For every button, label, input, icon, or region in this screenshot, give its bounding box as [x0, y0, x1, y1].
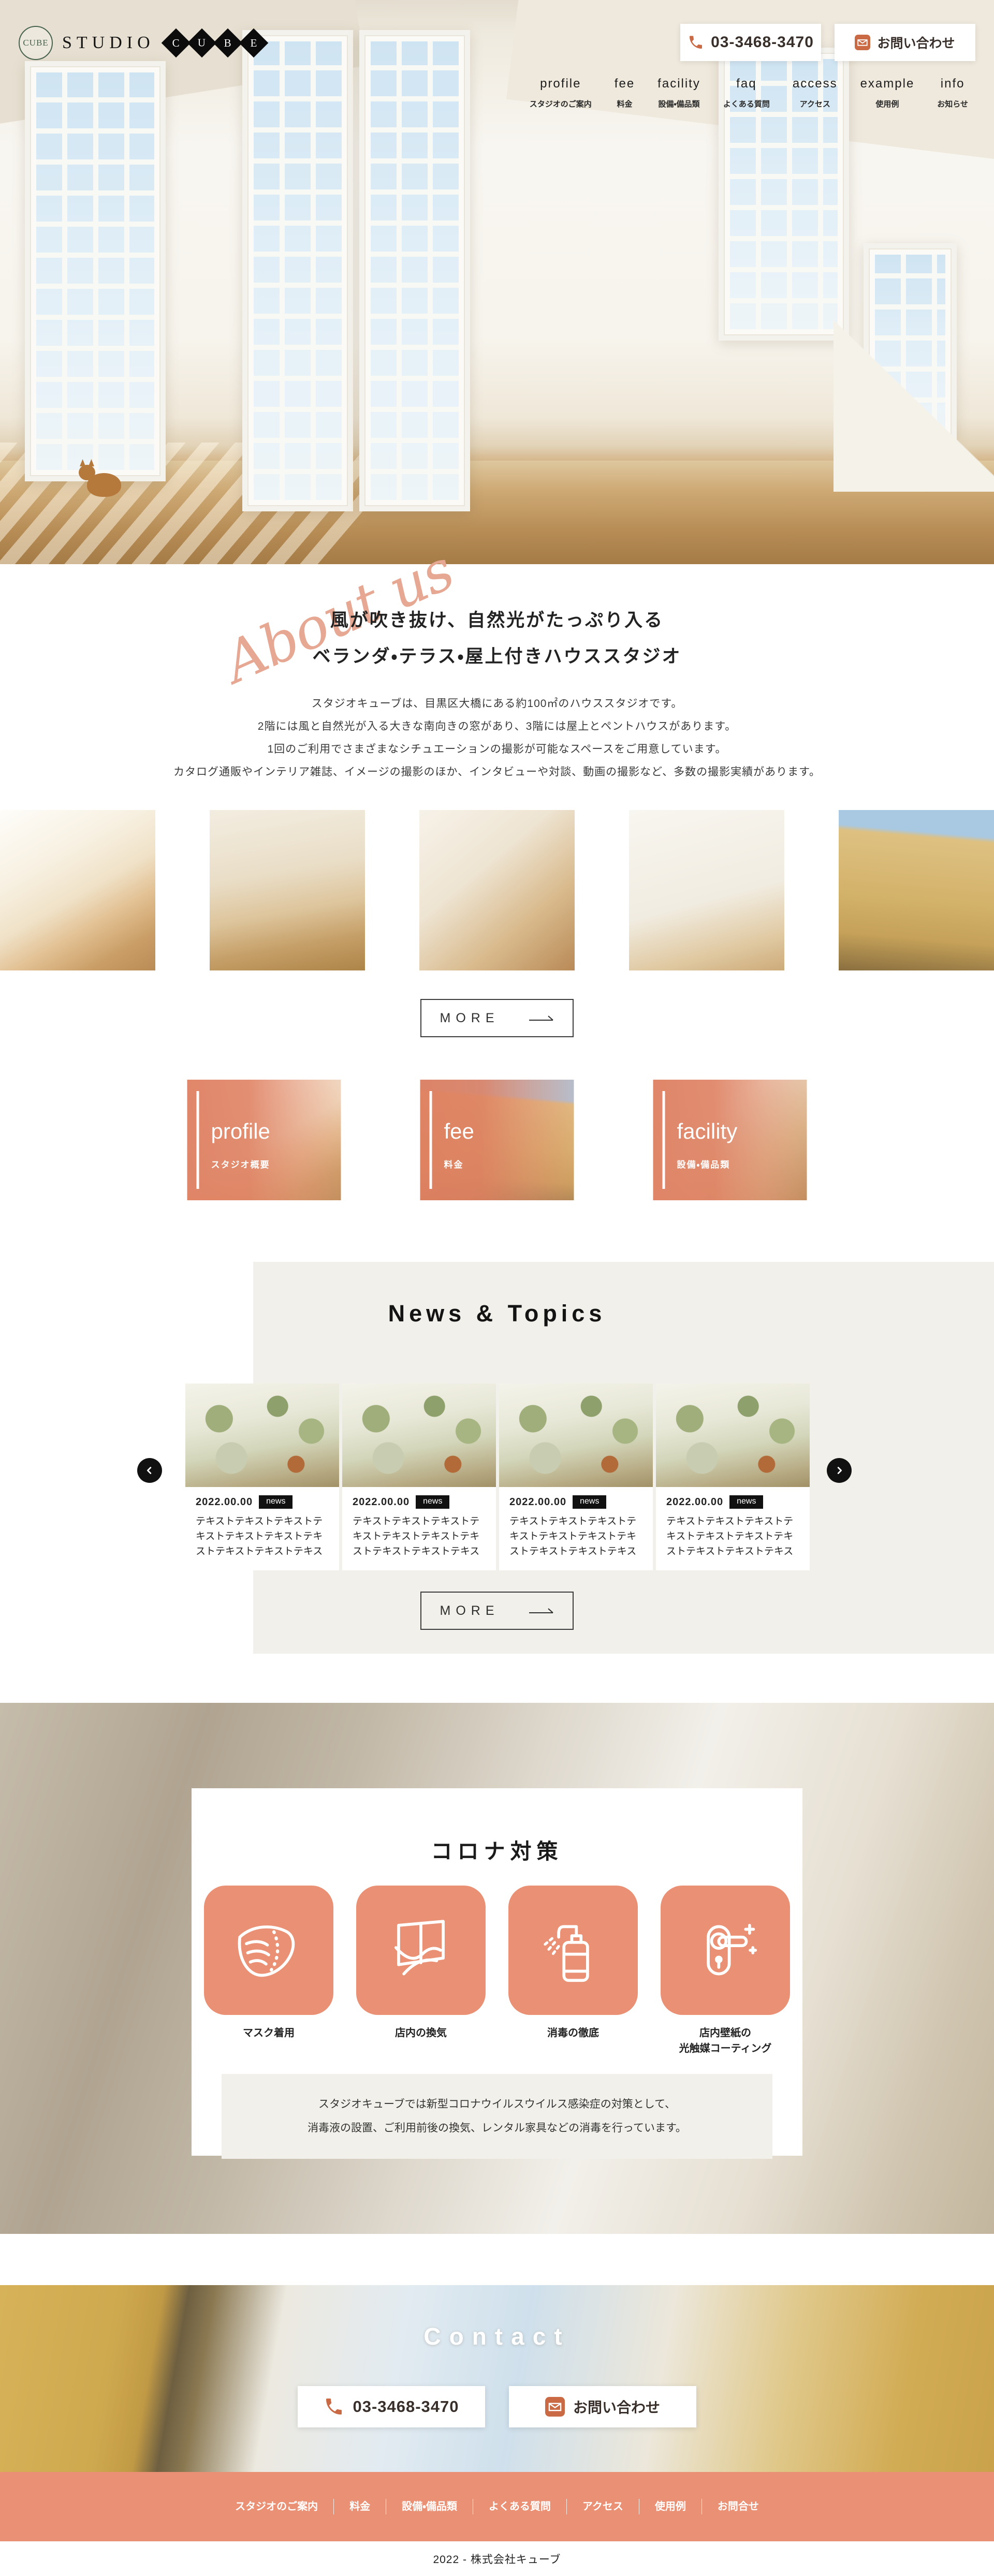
menu-card-title-jp: 料金	[444, 1157, 464, 1170]
header-contact-button[interactable]: お問い合わせ	[835, 24, 975, 61]
footer-links: スタジオのご案内 料金 設備・備品類 よくある質問 アクセス 使用例 お問合せ	[220, 2499, 774, 2514]
hero-door-panes	[36, 72, 154, 470]
menu-card-title-en: profile	[211, 1119, 270, 1144]
footer: スタジオのご案内 料金 設備・備品類 よくある質問 アクセス 使用例 お問合せ	[0, 2472, 994, 2541]
copyright-text: 2022 - 株式会社キューブ	[433, 2551, 561, 2567]
nav-item-en: access	[793, 77, 838, 91]
news-excerpt: テキストテキストテキストテキストテキストテキストテキストテキストテキストテキスト…	[666, 1514, 799, 1559]
sanitizer-pump-icon	[508, 1886, 638, 2015]
nav-item-en: example	[860, 77, 915, 91]
corona-measure-label: 店内壁紙の 光触媒コーティング	[679, 2025, 772, 2056]
news-date: 2022.00.00	[666, 1496, 723, 1508]
footer-link-example[interactable]: 使用例	[639, 2499, 702, 2514]
about-heading-line2: ベランダ・テラス・屋上付きハウススタジオ	[0, 639, 994, 675]
corona-note-line2: 消毒液の設置、ご利用前後の換気、レンタル家具などの消毒を行っています。	[222, 2116, 772, 2140]
section-spacer	[0, 1654, 994, 1703]
hero-section: CUBE STUDIO C U B E 03-3468-3470 お問い合わせ …	[0, 0, 994, 564]
logo-studio-text: STUDIO	[62, 33, 155, 53]
corona-title: コロナ対策	[192, 1834, 802, 1865]
gallery-photo	[839, 810, 994, 970]
menu-card-title-jp: スタジオ概要	[211, 1157, 270, 1170]
news-card-meta: 2022.00.00 news	[509, 1495, 642, 1509]
about-heading-line1: 風が吹き抜け、自然光がたっぷり入る	[0, 602, 994, 639]
news-card-body: 2022.00.00 news テキストテキストテキストテキストテキストテキスト…	[656, 1487, 810, 1570]
open-window-wind-icon	[356, 1886, 486, 2015]
contact-background-photo	[0, 2285, 994, 2472]
news-more-button[interactable]: MORE	[420, 1592, 574, 1630]
header-cta-group: 03-3468-3470 お問い合わせ	[680, 24, 975, 61]
corona-note-line1: スタジオキューブでは新型コロナウイルスウイルス感染症の対策として、	[222, 2093, 772, 2116]
nav-item-faq[interactable]: faq よくある質問	[712, 77, 781, 109]
footer-link-facility[interactable]: 設備・備品類	[386, 2499, 473, 2514]
hero-french-door-center-1	[242, 30, 353, 511]
corona-measure-label-line: 消毒の徹底	[547, 2025, 599, 2041]
logo[interactable]: CUBE STUDIO C U B E	[19, 26, 267, 60]
corona-card: コロナ対策 マスク着用	[192, 1788, 802, 2156]
corona-measure-label: 消毒の徹底	[547, 2025, 599, 2041]
nav-item-en: fee	[615, 77, 635, 91]
menu-card-title-jp: 設備・備品類	[677, 1157, 730, 1170]
about-paragraph-line: 2階には風と自然光が入る大きな南向きの窓があり、3階には屋上とペントハウスがあり…	[0, 715, 994, 738]
menu-card-accent-bar	[197, 1091, 199, 1189]
gallery-photo	[419, 810, 575, 970]
right-arrow-icon	[529, 1014, 554, 1022]
corona-measure-label-line: 店内の換気	[395, 2025, 447, 2041]
nav-item-info[interactable]: info お知らせ	[926, 77, 980, 109]
corona-section: コロナ対策 マスク着用	[0, 1703, 994, 2234]
hero-door-panes	[254, 41, 342, 500]
news-excerpt: テキストテキストテキストテキストテキストテキストテキストテキストテキストテキスト…	[509, 1514, 642, 1559]
nav-item-jp: アクセス	[800, 98, 830, 109]
contact-phone-number: 03-3468-3470	[353, 2397, 459, 2416]
logo-diamond-letter: B	[224, 36, 231, 49]
nav-item-profile[interactable]: profile スタジオのご案内	[518, 77, 603, 109]
news-card-meta: 2022.00.00 news	[353, 1495, 486, 1509]
corona-measure-label-line: 店内壁紙の	[679, 2025, 772, 2041]
hero-french-door-left	[25, 61, 166, 481]
hero-cat	[87, 473, 121, 497]
about-more-button[interactable]: MORE	[420, 999, 574, 1037]
logo-diamond-letter: E	[250, 36, 257, 49]
nav-item-fee[interactable]: fee 料金	[603, 77, 646, 109]
hero-staircase	[834, 321, 994, 492]
news-category-badge: news	[259, 1495, 293, 1509]
nav-item-jp: 設備・備品類	[658, 98, 699, 109]
door-handle-sparkle-icon	[661, 1886, 790, 2015]
contact-mail-label: お問い合わせ	[573, 2396, 660, 2417]
header-phone-button[interactable]: 03-3468-3470	[680, 24, 821, 61]
news-excerpt: テキストテキストテキストテキストテキストテキストテキストテキストテキストテキスト…	[353, 1514, 486, 1559]
nav-item-en: profile	[540, 77, 581, 91]
nav-item-jp: 料金	[617, 98, 632, 109]
news-card-body: 2022.00.00 news テキストテキストテキストテキストテキストテキスト…	[185, 1487, 339, 1570]
logo-emblem-icon: CUBE	[19, 26, 53, 60]
footer-link-faq[interactable]: よくある質問	[473, 2499, 567, 2514]
nav-item-jp: お知らせ	[937, 98, 968, 109]
nav-item-jp: スタジオのご案内	[530, 98, 592, 109]
footer-link-fee[interactable]: 料金	[334, 2499, 386, 2514]
about-paragraph-line: 1回のご利用でさまざまなシチュエーションの撮影が可能なスペースをご用意しています…	[0, 738, 994, 761]
news-title: News & Topics	[0, 1300, 994, 1327]
menu-card-title-en: facility	[677, 1119, 738, 1144]
gallery-photo	[629, 810, 784, 970]
news-card-body: 2022.00.00 news テキストテキストテキストテキストテキストテキスト…	[342, 1487, 496, 1570]
phone-icon	[324, 2396, 344, 2417]
news-date: 2022.00.00	[353, 1496, 410, 1508]
news-card[interactable]: 2022.00.00 news テキストテキストテキストテキストテキストテキスト…	[499, 1383, 653, 1570]
chevron-left-icon	[144, 1465, 155, 1476]
more-label: MORE	[440, 1603, 500, 1618]
menu-card-facility[interactable]: facility 設備・備品類	[653, 1080, 807, 1200]
news-card[interactable]: 2022.00.00 news テキストテキストテキストテキストテキストテキスト…	[656, 1383, 810, 1570]
menu-card-title-en: fee	[444, 1119, 474, 1144]
news-category-badge: news	[416, 1495, 449, 1509]
contact-button-row: 03-3468-3470 お問い合わせ	[298, 2386, 696, 2427]
logo-diamond-letter: C	[172, 36, 180, 49]
contact-title: Contact	[0, 2322, 994, 2350]
logo-diamond: E	[239, 28, 268, 58]
contact-section: Contact 03-3468-3470 お問い合わせ	[0, 2285, 994, 2472]
news-card-meta: 2022.00.00 news	[196, 1495, 329, 1509]
corona-measure-coating: 店内壁紙の 光触媒コーティング	[661, 1886, 790, 2056]
section-spacer	[0, 2234, 994, 2285]
main-nav: profile スタジオのご案内 fee 料金 facility 設備・備品類 …	[518, 77, 980, 109]
more-label: MORE	[440, 1011, 500, 1026]
menu-card-profile[interactable]: profile スタジオ概要	[187, 1080, 341, 1200]
phone-icon	[688, 34, 704, 51]
logo-diamond: C	[161, 28, 191, 58]
about-paragraph-line: カタログ通販やインテリア雑誌、イメージの撮影のほか、インタビューや対談、動画の撮…	[0, 761, 994, 784]
logo-diamond-letter: U	[198, 36, 206, 49]
news-card-photo	[185, 1383, 339, 1487]
contact-phone-button[interactable]: 03-3468-3470	[298, 2386, 485, 2427]
chevron-right-icon	[834, 1465, 845, 1476]
menu-card-overlay	[420, 1080, 574, 1200]
hero-french-door-center-2	[359, 30, 470, 511]
news-card-photo	[499, 1383, 653, 1487]
nav-item-en: faq	[736, 77, 756, 91]
hero-door-panes	[371, 41, 459, 500]
logo-emblem-text: CUBE	[23, 38, 48, 48]
news-date: 2022.00.00	[509, 1496, 566, 1508]
menu-card-row: profile スタジオ概要 fee 料金 facility 設備・備品類	[187, 1080, 807, 1200]
nav-item-facility[interactable]: facility 設備・備品類	[646, 77, 712, 109]
right-arrow-icon	[529, 1607, 554, 1614]
logo-diamond: U	[187, 28, 216, 58]
news-card-row: 2022.00.00 news テキストテキストテキストテキストテキストテキスト…	[185, 1383, 810, 1570]
corona-measure-label-line: 光触媒コーティング	[679, 2041, 772, 2056]
news-excerpt: テキストテキストテキストテキストテキストテキストテキストテキストテキストテキスト…	[196, 1514, 329, 1559]
news-next-button[interactable]	[827, 1458, 852, 1483]
news-prev-button[interactable]	[137, 1458, 162, 1483]
news-card[interactable]: 2022.00.00 news テキストテキストテキストテキストテキストテキスト…	[185, 1383, 339, 1570]
header-phone-number: 03-3468-3470	[711, 34, 814, 51]
menu-card-fee[interactable]: fee 料金	[420, 1080, 574, 1200]
gallery-photo	[0, 810, 155, 970]
news-category-badge: news	[573, 1495, 606, 1509]
menu-card-accent-bar	[663, 1091, 665, 1189]
footer-link-profile[interactable]: スタジオのご案内	[220, 2499, 334, 2514]
corona-measure-disinfection: 消毒の徹底	[508, 1886, 638, 2056]
about-paragraph: スタジオキューブは、目黒区大橋にある約100㎡のハウススタジオです。 2階には風…	[0, 693, 994, 784]
corona-measures-row: マスク着用 店内の換気	[192, 1886, 802, 2056]
nav-item-en: info	[941, 77, 965, 91]
about-heading: 風が吹き抜け、自然光がたっぷり入る ベランダ・テラス・屋上付きハウススタジオ	[0, 602, 994, 675]
footer-link-contact[interactable]: お問合せ	[702, 2499, 774, 2514]
nav-item-example[interactable]: example 使用例	[849, 77, 926, 109]
nav-item-en: facility	[657, 77, 700, 91]
news-card[interactable]: 2022.00.00 news テキストテキストテキストテキストテキストテキスト…	[342, 1383, 496, 1570]
nav-item-access[interactable]: access アクセス	[781, 77, 849, 109]
corona-measure-ventilation: 店内の換気	[356, 1886, 486, 2056]
header-contact-label: お問い合わせ	[877, 33, 955, 52]
news-card-photo	[656, 1383, 810, 1487]
news-section: News & Topics 2022.00.00 news テキストテキストテキ…	[0, 1262, 994, 1654]
page: CUBE STUDIO C U B E 03-3468-3470 お問い合わせ …	[0, 0, 994, 2576]
nav-item-jp: よくある質問	[723, 98, 770, 109]
gallery-photo	[210, 810, 365, 970]
about-section: About us 風が吹き抜け、自然光がたっぷり入る ベランダ・テラス・屋上付き…	[0, 564, 994, 1262]
corona-measure-label: マスク着用	[243, 2025, 295, 2041]
about-paragraph-line: スタジオキューブは、目黒区大橋にある約100㎡のハウススタジオです。	[0, 693, 994, 715]
mail-icon	[855, 35, 870, 50]
logo-diamond: B	[213, 28, 242, 58]
news-card-photo	[342, 1383, 496, 1487]
corona-note: スタジオキューブでは新型コロナウイルスウイルス感染症の対策として、 消毒液の設置…	[222, 2074, 772, 2159]
logo-cube-diamonds-icon: C U B E	[163, 33, 267, 53]
contact-mail-button[interactable]: お問い合わせ	[509, 2386, 696, 2427]
mail-icon	[545, 2397, 565, 2417]
photo-gallery	[0, 810, 994, 970]
menu-card-accent-bar	[430, 1091, 432, 1189]
face-mask-icon	[204, 1886, 333, 2015]
corona-measure-label-line: マスク着用	[243, 2025, 295, 2041]
news-date: 2022.00.00	[196, 1496, 253, 1508]
news-card-body: 2022.00.00 news テキストテキストテキストテキストテキストテキスト…	[499, 1487, 653, 1570]
footer-link-access[interactable]: アクセス	[567, 2499, 639, 2514]
corona-measure-label: 店内の換気	[395, 2025, 447, 2041]
nav-item-jp: 使用例	[875, 98, 899, 109]
news-card-meta: 2022.00.00 news	[666, 1495, 799, 1509]
copyright-bar: 2022 - 株式会社キューブ	[0, 2541, 994, 2576]
news-category-badge: news	[729, 1495, 763, 1509]
corona-measure-mask: マスク着用	[204, 1886, 333, 2056]
